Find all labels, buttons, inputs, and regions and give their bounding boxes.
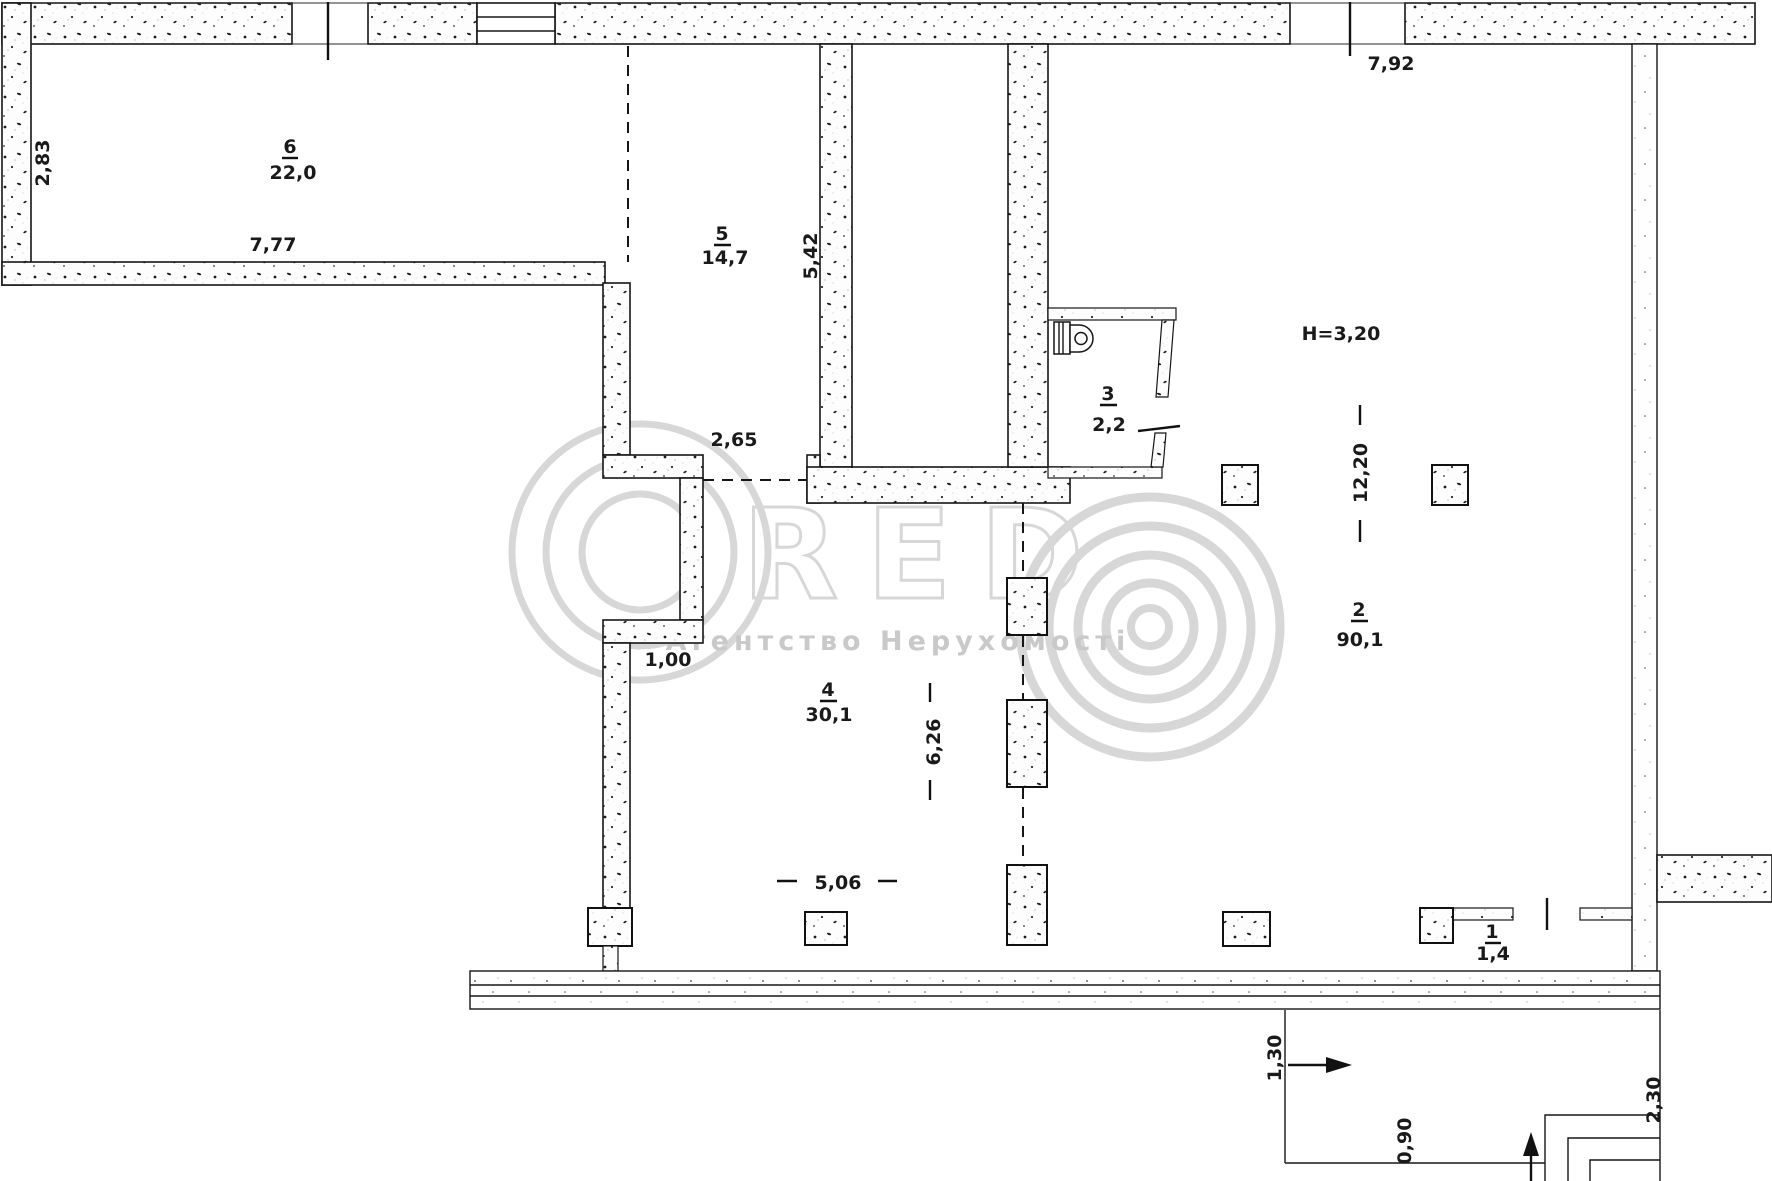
room1-number: 1 — [1485, 921, 1498, 943]
dim-porch-step: 0,90 — [1394, 1118, 1416, 1165]
ceiling-height-note: H=3,20 — [1302, 323, 1381, 345]
direction-arrow-up — [1523, 1132, 1539, 1181]
toilet-icon — [1054, 322, 1093, 354]
floor-plan-drawing: RED Агентство Нерухомості — [0, 0, 1772, 1181]
left-chain-wall-e — [603, 643, 630, 908]
porch-step-1 — [1545, 1115, 1660, 1181]
floor-plan-page: RED Агентство Нерухомості — [0, 0, 1772, 1181]
left-chain-wall-a — [603, 283, 630, 455]
left-chain-wall-d — [603, 620, 703, 643]
walls — [2, 2, 1772, 971]
right-outer-wall — [1632, 44, 1657, 971]
top-wall-segment-2 — [368, 3, 477, 44]
room1-area: 1,4 — [1476, 943, 1510, 965]
direction-arrow-right — [1288, 1057, 1352, 1073]
watermark-red-text: RED — [742, 483, 1111, 628]
room4-number: 4 — [821, 679, 834, 701]
pilaster-left — [588, 908, 632, 946]
dim-porch-depth: 1,30 — [1264, 1035, 1286, 1082]
dim-top-entrance-width: 7,92 — [1368, 53, 1415, 75]
shaft-bottom-wall — [807, 467, 1070, 503]
room3-area: 2,2 — [1092, 414, 1126, 436]
left-chain-wall-b — [603, 455, 703, 478]
room5-area: 14,7 — [702, 247, 749, 269]
left-wall-stub — [603, 946, 618, 971]
watermark-letter-c-ring-mid — [546, 458, 734, 646]
dim-wall-jog: 1,00 — [645, 649, 692, 671]
wc-right-wall-lower — [1151, 433, 1166, 467]
axis-column-c — [1007, 865, 1047, 945]
bottom-column-1 — [805, 912, 847, 945]
room6-number: 6 — [283, 136, 296, 158]
room1-wall-right — [1580, 908, 1632, 920]
room3-number: 3 — [1101, 383, 1114, 405]
bottom-platform — [470, 971, 1660, 1181]
room4-area: 30,1 — [806, 704, 853, 726]
shaft-right-wall — [1008, 44, 1048, 467]
window-symbol — [477, 3, 555, 44]
dim-column-span: 5,06 — [815, 872, 862, 894]
room1-pilaster — [1420, 908, 1453, 943]
top-wall-segment-3 — [555, 3, 1290, 44]
room1-wall-left — [1453, 908, 1513, 920]
room6-bottom-wall — [2, 262, 605, 285]
room2-area: 90,1 — [1337, 629, 1384, 651]
wc-right-wall-upper — [1156, 320, 1174, 397]
room6-area: 22,0 — [270, 162, 317, 184]
top-wall-segment-1 — [2, 3, 292, 44]
dim-room5-height: 5,42 — [800, 233, 822, 280]
hall-column-2 — [1432, 465, 1468, 505]
porch-step-3 — [1590, 1160, 1660, 1181]
left-chain-wall-c — [680, 478, 703, 620]
dim-hall-length: 12,20 — [1350, 443, 1372, 503]
bottom-column-2 — [1223, 912, 1270, 946]
top-wall-segment-4 — [1405, 3, 1755, 44]
dim-room4-length: 6,26 — [923, 719, 945, 766]
shaft-left-wall — [820, 44, 852, 467]
dim-room6-width: 7,77 — [250, 234, 297, 256]
platform-band — [470, 971, 1660, 1009]
hall-column-1 — [1222, 465, 1258, 505]
room5-number: 5 — [715, 223, 728, 245]
dim-room4-opening: 2,65 — [711, 429, 758, 451]
axis-column-a — [1007, 578, 1047, 635]
left-outer-wall — [2, 3, 31, 285]
right-outer-block — [1657, 855, 1772, 902]
dim-porch-side: 2,30 — [1643, 1077, 1665, 1124]
wc-top-wall — [1048, 308, 1176, 320]
dim-left-wall-height: 2,83 — [32, 140, 54, 187]
wc-door-tick — [1138, 426, 1180, 431]
watermark-agency-text: Агентство Нерухомості — [666, 626, 1131, 657]
axis-column-b — [1007, 700, 1047, 787]
room2-number: 2 — [1352, 599, 1365, 621]
wc-bottom-wall — [1048, 467, 1162, 478]
